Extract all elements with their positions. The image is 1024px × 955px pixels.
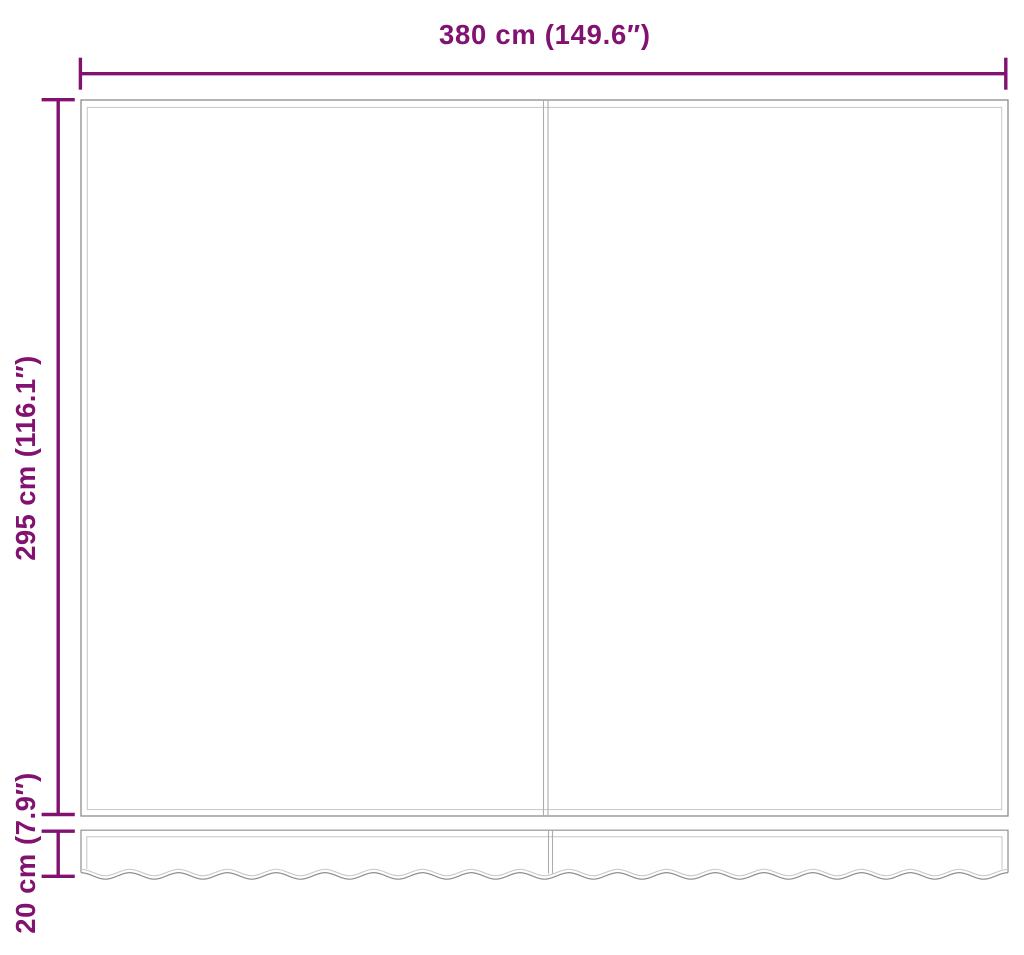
svg-text:20 cm (7.9″): 20 cm (7.9″) — [10, 773, 41, 934]
svg-text:295 cm (116.1″): 295 cm (116.1″) — [10, 356, 41, 561]
svg-text:380 cm (149.6″): 380 cm (149.6″) — [439, 19, 650, 50]
